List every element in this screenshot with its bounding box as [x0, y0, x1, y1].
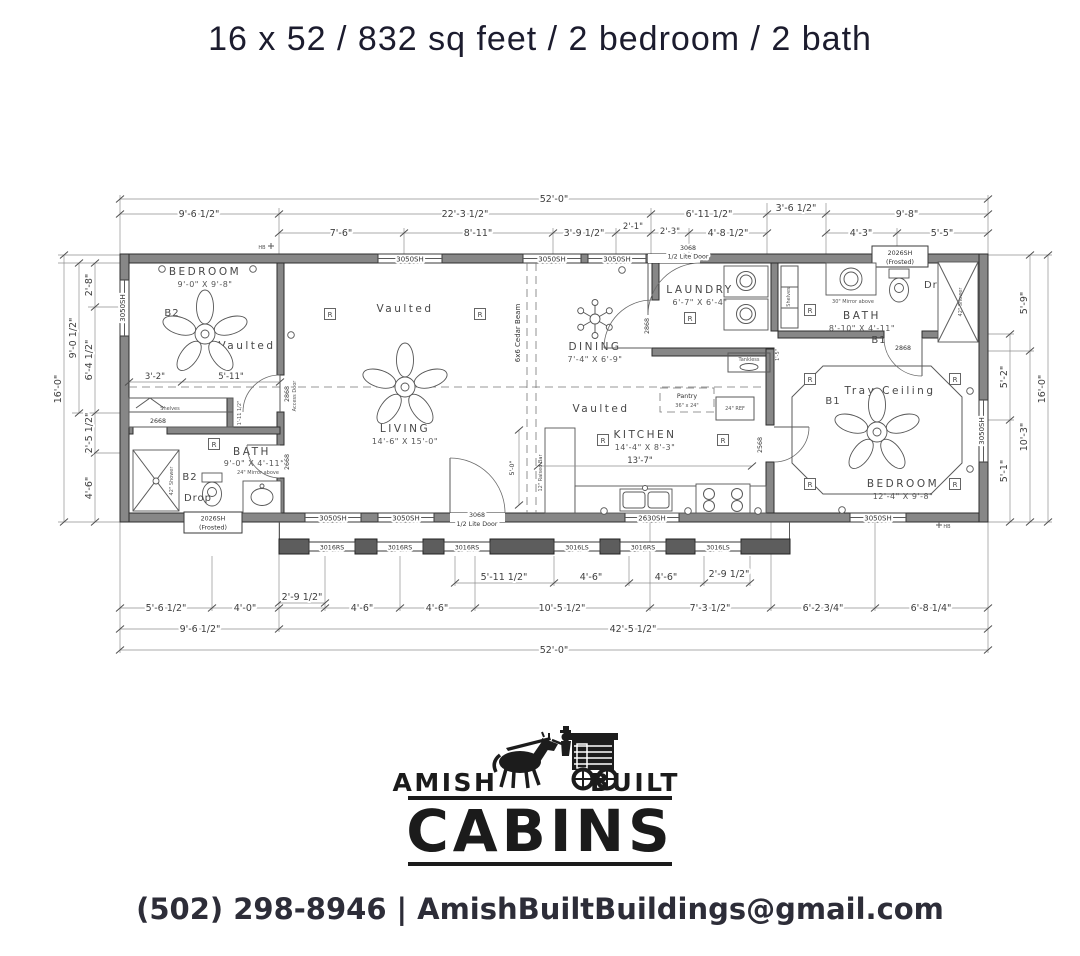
dims-top: 52'-0" 9'-6 1/2" 22'-3 1/2" 6'-11 1/2" 3…	[116, 194, 992, 254]
ceiling-fan-icon	[161, 290, 250, 375]
window-label: 2026SH	[201, 516, 226, 523]
door-label: 2668	[150, 418, 166, 425]
horse-wagon-logo-icon	[486, 724, 626, 800]
svg-text:R: R	[328, 311, 333, 319]
porch-window-label: 3016LS	[706, 545, 730, 552]
svg-text:R: R	[478, 311, 483, 319]
porch-window-label: 3016RS	[388, 545, 412, 552]
email-address: AmishBuiltBuildings@gmail.com	[417, 892, 944, 926]
dim-bottom: 6'-2 3/4"	[803, 603, 844, 614]
window-label: 3050SH	[392, 515, 420, 523]
recessed-light-symbol: R	[950, 479, 961, 490]
door-label: 2568	[757, 437, 764, 453]
recessed-light-symbol: R	[805, 479, 816, 490]
dim-top: 3'-6 1/2"	[776, 203, 817, 214]
room-name: KITCHEN	[614, 429, 677, 441]
shower-label: 42" Shower	[169, 466, 175, 496]
dim-bottom: 10'-5 1/2"	[539, 603, 586, 614]
shelves-label: Shelves	[160, 406, 180, 412]
dim-bottom: 4'-6"	[351, 603, 374, 614]
tankless-label: Tankless	[737, 357, 759, 363]
door-label: 2868	[284, 386, 291, 402]
dim-internal: 1'-5"	[775, 349, 781, 361]
recessed-light-symbol: R	[209, 439, 220, 450]
bath1: Shelves 30" Mirror above Drop 42" Shower…	[775, 262, 978, 376]
door-label: 3068	[469, 512, 485, 519]
door-label: 3068	[680, 245, 696, 252]
drop-label: Drop	[184, 493, 212, 504]
hose-bib-label: HB	[258, 245, 266, 251]
recessed-light-symbol: R	[805, 305, 816, 316]
room-size: 9'-0" X 9'-8"	[178, 280, 233, 289]
dim-right: 5'-2"	[999, 366, 1010, 389]
room-size: 8'-10" X 4'-11"	[829, 324, 895, 333]
dim-right: 10'-3"	[1019, 423, 1030, 452]
window-label: (Frosted)	[886, 259, 914, 266]
ceiling-label: Tray Ceiling	[843, 385, 935, 397]
dim-left: 9'-0 1/2"	[68, 318, 79, 359]
dim-top: 4'-8 1/2"	[708, 228, 749, 239]
svg-text:R: R	[953, 481, 958, 489]
cedar-beam-label: 6x6 Cedar Beam	[514, 304, 522, 363]
dim-bottom: 6'-8 1/4"	[911, 603, 952, 614]
window-label: 3050SH	[864, 515, 892, 523]
door-label: 2868	[895, 345, 911, 352]
logo-cabins: CABINS	[0, 802, 1080, 860]
room-size: 7'-4" X 6'-9"	[568, 355, 623, 364]
ceiling-label: Vaulted	[572, 403, 629, 415]
room-name: LIVING	[380, 423, 430, 435]
window-label: 3050SH	[319, 515, 347, 523]
recessed-light-symbol: R	[475, 309, 486, 320]
dim-bottom: 2'-9 1/2"	[709, 569, 750, 580]
dim-bottom: 4'-6"	[580, 572, 603, 583]
recessed-light-symbol: R	[598, 435, 609, 446]
bedroom2: BEDROOM 9'-0" X 9'-8" B2 Vaulted 3'-2" 5…	[125, 266, 298, 412]
window-label: 3050SH	[396, 256, 424, 264]
dim-bottom: 5'-11 1/2"	[481, 572, 528, 583]
dim-left: 4'-6"	[84, 477, 95, 500]
svg-text:R: R	[688, 315, 693, 323]
dim-internal: 13'-7"	[627, 456, 653, 466]
dim-left: 2'-8"	[84, 274, 95, 297]
room-name: BATH	[843, 310, 881, 322]
dim-top: 4'-3"	[850, 228, 873, 239]
room-tag: B1	[825, 396, 840, 407]
window-label: 3050SH	[603, 256, 631, 264]
toilet-icon	[889, 269, 909, 302]
dim-left: 2'-5 1/2"	[84, 413, 95, 454]
recessed-light-symbol: R	[325, 309, 336, 320]
living-room: Vaulted LIVING 14'-6" X 15'-0"	[361, 303, 450, 446]
svg-text:R: R	[953, 376, 958, 384]
recessed-light-symbol: R	[805, 374, 816, 385]
dim-bottom: 2'-9 1/2"	[282, 592, 323, 603]
svg-text:R: R	[808, 376, 813, 384]
room-name: BEDROOM	[169, 266, 241, 278]
window-label: 3050SH	[538, 256, 566, 264]
room-size: 6'-7" X 6'-4"	[673, 298, 728, 307]
raised-bar-label: 12" Raised Bar	[538, 454, 544, 492]
dims-left: 2'-8" 9'-0 1/2" 6'-4 1/2" 2'-5 1/2" 4'-6…	[53, 252, 129, 526]
bar-dim: 5'-0"	[509, 460, 516, 475]
chandelier-icon	[577, 300, 614, 339]
dim-bottom: 4'-6"	[426, 603, 449, 614]
phone-number: (502) 298-8946	[136, 892, 386, 926]
dim-top: 2'-3"	[660, 227, 680, 237]
dim-top: 3'-9 1/2"	[564, 228, 605, 239]
dim-left: 16'-0"	[53, 375, 64, 404]
dims-right: 5'-9" 5'-2" 10'-3" 5'-1" 16'-0"	[988, 252, 1052, 526]
svg-text:R: R	[601, 437, 606, 445]
ceiling-label: Vaulted	[376, 303, 433, 315]
door-label: 2868	[644, 318, 651, 334]
recessed-light-symbol: R	[950, 374, 961, 385]
window-label: 3050SH	[978, 417, 986, 445]
room-size: 14'-6" X 15'-0"	[372, 437, 438, 446]
porch-window-label: 3016RS	[455, 545, 479, 552]
room-name: BEDROOM	[867, 478, 939, 490]
dim-right: 5'-9"	[1019, 292, 1030, 315]
shower-label: 42" Shower	[958, 287, 964, 317]
closet-left: Shelves 2668 1'-11 1/2"	[129, 398, 243, 427]
room-name: LAUNDRY	[666, 284, 733, 296]
svg-text:R: R	[808, 307, 813, 315]
dining: DINING 7'-4" X 6'-9" Vaulted	[568, 267, 630, 415]
dim-top: 9'-8"	[896, 209, 919, 220]
door-label: 1/2 Lite Door	[457, 521, 498, 528]
dim-top: 7'-6"	[330, 228, 353, 239]
window-label: 3050SH	[119, 294, 127, 322]
mirror-label: 24" Mirror above	[237, 470, 279, 476]
ceiling-fan-icon	[833, 388, 922, 473]
porch-window-label: 3016LS	[565, 545, 589, 552]
room-size: 12'-4" X 9'-8"	[873, 492, 934, 501]
floor-plan-page: 16 x 52 / 832 sq feet / 2 bedroom / 2 ba…	[0, 0, 1080, 956]
dim-internal: 5'-11"	[218, 372, 244, 382]
dim-left: 6'-4 1/2"	[84, 340, 95, 381]
porch-window-label: 3016RS	[631, 545, 655, 552]
porch-window-label: 3016RS	[320, 545, 344, 552]
contact-separator: |	[397, 892, 408, 926]
dim-top: 6'-11 1/2"	[686, 209, 733, 220]
door-label: 2668	[284, 454, 291, 470]
dim-top: 9'-6 1/2"	[179, 209, 220, 220]
bedroom1: 2568 Tray Ceiling B1 BEDROOM 12'-4" X 9'…	[757, 366, 973, 513]
dim-bottom: 9'-6 1/2"	[180, 624, 221, 635]
bath2: 42" Shower 24" Mirror above BATH 9'-0" X…	[133, 445, 291, 513]
pantry-label: Pantry	[677, 393, 697, 400]
room-name: BATH	[233, 446, 271, 458]
hose-bib-label: HB	[943, 524, 951, 530]
svg-text:R: R	[808, 481, 813, 489]
window-label: 2026SH	[888, 250, 913, 257]
room-size: 9'-0" X 4'-11"	[224, 459, 285, 468]
dim-right: 5'-1"	[999, 460, 1010, 483]
dim-top: 22'-3 1/2"	[442, 209, 489, 220]
ceiling-fan-icon	[361, 343, 450, 428]
room-size: 14'-4" X 8'-3"	[615, 443, 676, 452]
dim-top-overall: 52'-0"	[540, 194, 569, 205]
door-label: Access Door	[292, 380, 298, 412]
dim-internal: 3'-2"	[145, 372, 165, 382]
dim-bottom: 5'-6 1/2"	[146, 603, 187, 614]
window-label: (Frosted)	[199, 525, 227, 532]
svg-text:R: R	[212, 441, 217, 449]
dim-top: 8'-11"	[464, 228, 493, 239]
window-label: 2630SH	[638, 515, 666, 523]
svg-text:R: R	[721, 437, 726, 445]
pantry-size: 36" x 24"	[675, 403, 698, 409]
dim-bottom: 42'-5 1/2"	[610, 624, 657, 635]
room-tag: B2	[182, 472, 197, 483]
logo-bottom-rule	[408, 862, 672, 866]
mirror-label: 30" Mirror above	[832, 299, 874, 305]
room-name: DINING	[568, 341, 621, 353]
dim-top: 5'-5"	[931, 228, 954, 239]
dim-bottom-overall: 52'-0"	[540, 645, 569, 656]
kitchen: Pantry 36" x 24" 24" REF 5'-0" 12" Raise…	[509, 388, 766, 514]
dim-internal: 1'-11 1/2"	[237, 401, 243, 426]
ceiling-lines: 6x6 Cedar Beam	[129, 263, 766, 513]
door-label: 1/2 Lite Door	[668, 254, 709, 261]
fridge-label: 24" REF	[725, 406, 745, 412]
porch-rail: 3016RS 3016RS 3016RS 3016LS 3016RS 3016L…	[279, 522, 790, 554]
contact-line: (502) 298-8946|AmishBuiltBuildings@gmail…	[0, 892, 1080, 926]
dim-bottom: 4'-6"	[655, 572, 678, 583]
recessed-light-symbol: R	[685, 313, 696, 324]
dim-bottom: 4'-0"	[234, 603, 257, 614]
recessed-light-symbol: R	[718, 435, 729, 446]
shelves-label: Shelves	[786, 287, 792, 307]
dim-top: 2'-1"	[623, 222, 643, 232]
dim-bottom: 7'-3 1/2"	[690, 603, 731, 614]
dim-right: 16'-0"	[1037, 375, 1048, 404]
